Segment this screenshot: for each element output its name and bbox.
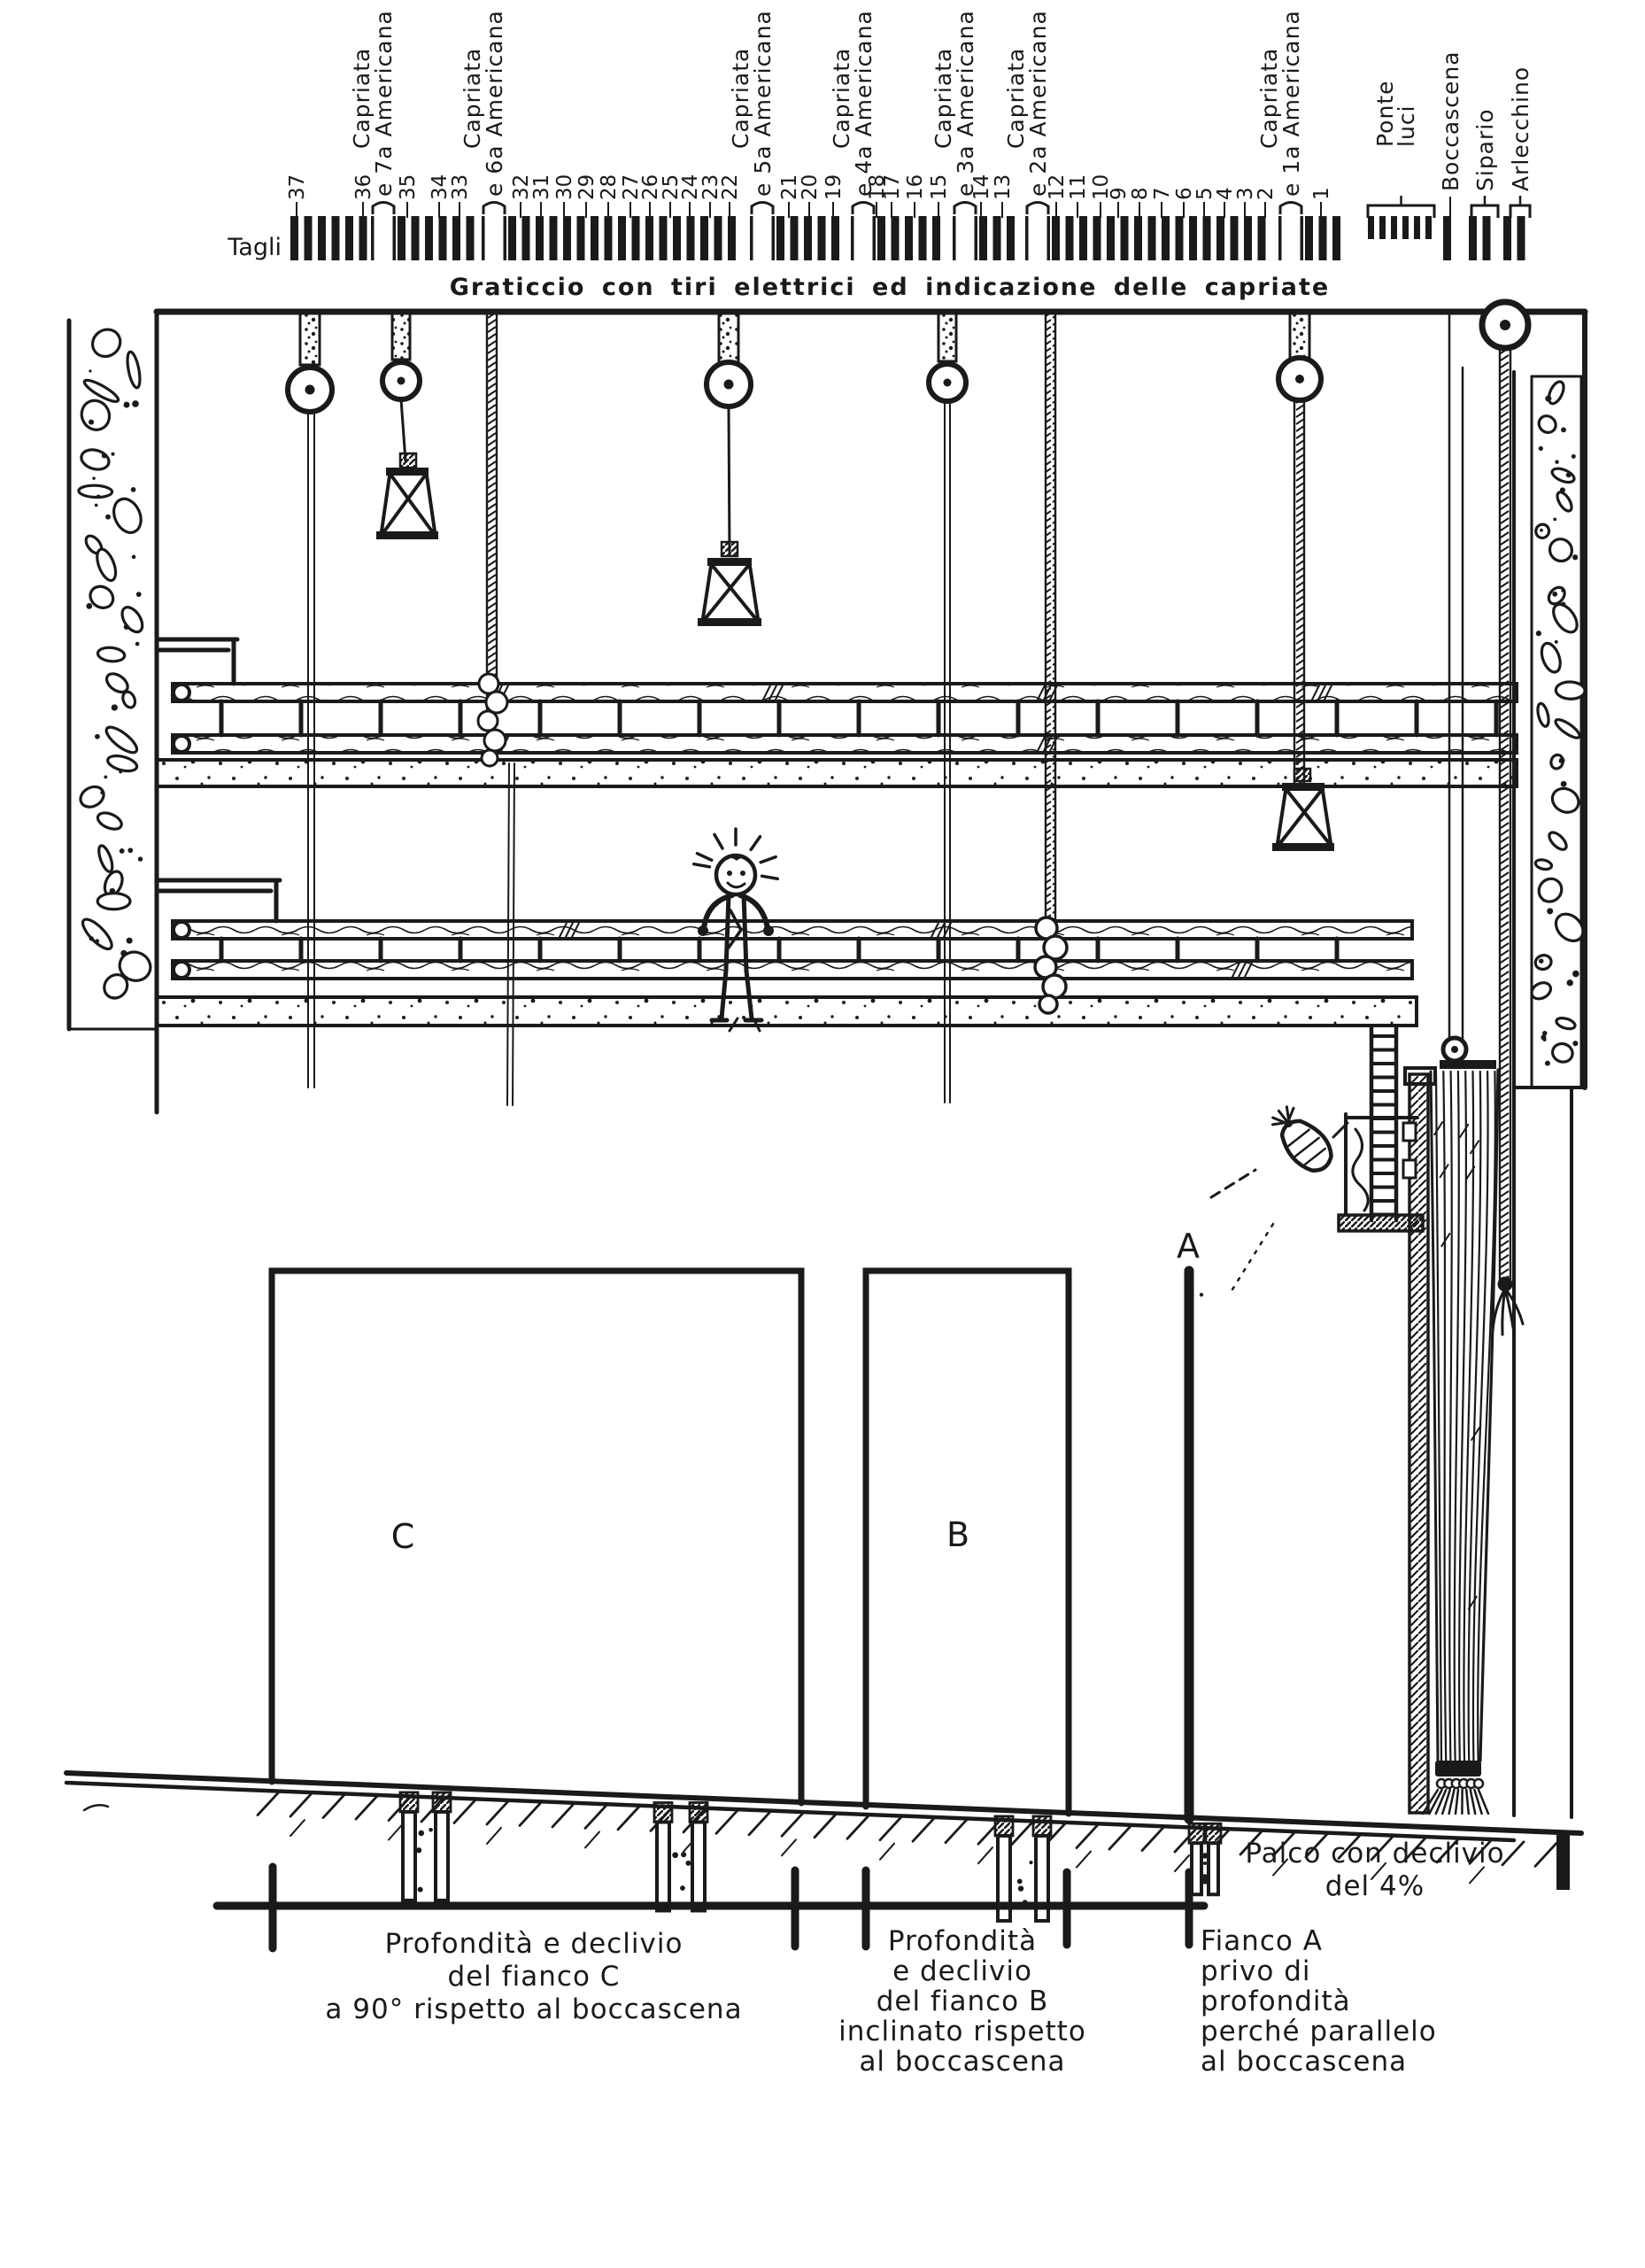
note-palco: Palco con declivio del 4% bbox=[1245, 1838, 1504, 1902]
ruler-bar bbox=[1518, 216, 1525, 260]
ruler-bar bbox=[305, 216, 313, 260]
wall-grit bbox=[1561, 427, 1566, 432]
sleeper-post bbox=[1209, 1843, 1218, 1894]
wall-stone bbox=[1534, 874, 1566, 906]
wall-stone bbox=[1547, 830, 1570, 853]
wall-stone bbox=[97, 844, 115, 873]
wall-grit bbox=[1561, 589, 1564, 592]
capriata-label-line2: e 3a Americana bbox=[953, 10, 978, 197]
ruler-bar bbox=[1443, 216, 1451, 260]
note-b-line4: inclinato rispetto bbox=[838, 2016, 1086, 2047]
tick-number: 15 bbox=[928, 174, 951, 200]
tick-number: 2 bbox=[1255, 187, 1278, 200]
ruler-bar bbox=[892, 216, 900, 260]
gap-bar bbox=[1047, 216, 1051, 260]
tick-number: 8 bbox=[1129, 187, 1152, 200]
tick-number: 11 bbox=[1067, 174, 1090, 200]
counterweight-sack bbox=[1265, 1099, 1348, 1180]
floor-hatch-tick bbox=[389, 1824, 403, 1840]
fabric-fold bbox=[1459, 1072, 1466, 1761]
flat-b-label: B bbox=[946, 1515, 969, 1554]
wall-grit bbox=[104, 775, 107, 778]
wall-grit bbox=[1555, 460, 1558, 463]
tick-number: 9 bbox=[1108, 187, 1131, 200]
ruler-bar bbox=[1121, 216, 1129, 260]
floor-hatch-tick bbox=[290, 1820, 305, 1836]
ruler-bar bbox=[932, 216, 940, 260]
ruler-bar bbox=[398, 216, 405, 260]
gap-bar bbox=[1025, 216, 1029, 260]
halo-ray bbox=[697, 854, 711, 861]
ruler-bar bbox=[318, 216, 326, 260]
floor-hatch-tick bbox=[1470, 1867, 1484, 1883]
wall-grit bbox=[1555, 640, 1558, 644]
note-fianco-a: Fianco A privo di profondità perché para… bbox=[1201, 1925, 1437, 2078]
ruler-bar bbox=[563, 216, 571, 260]
gap-bar bbox=[975, 216, 978, 260]
tick-number: 35 bbox=[397, 174, 420, 200]
sleeper-grit bbox=[419, 1831, 425, 1837]
ruler-bar bbox=[1148, 216, 1156, 260]
rope-7-hemp bbox=[1500, 347, 1510, 1279]
sleeper-cap bbox=[400, 1792, 418, 1812]
wall-stone bbox=[1550, 1041, 1575, 1064]
wall-grit bbox=[1552, 592, 1557, 597]
fabric-fold bbox=[1449, 1072, 1451, 1761]
ruler-bar bbox=[1162, 216, 1170, 260]
wall-grit bbox=[102, 453, 107, 459]
ruler-bar bbox=[687, 216, 695, 260]
ruler-bar bbox=[1066, 216, 1074, 260]
fabric-fold bbox=[1455, 1072, 1459, 1761]
wall-grit bbox=[127, 938, 133, 944]
sleeper-cap bbox=[433, 1792, 451, 1812]
strap-2 bbox=[392, 313, 410, 360]
ruler-bar bbox=[345, 216, 353, 260]
wall-stone bbox=[1538, 641, 1564, 675]
fabric-fold bbox=[1443, 1072, 1446, 1761]
wall-grit bbox=[89, 420, 94, 425]
sleeper-cap bbox=[654, 1802, 672, 1822]
ruler-short-bar bbox=[1402, 216, 1409, 239]
ruler-bar bbox=[979, 216, 987, 260]
wall-grit bbox=[119, 770, 122, 773]
extra-label-line1: Boccascena bbox=[1438, 50, 1464, 191]
sleeper-cap bbox=[1189, 1823, 1204, 1843]
ladder-base bbox=[1339, 1215, 1423, 1231]
gap-bar bbox=[873, 216, 877, 260]
gap-bar bbox=[953, 216, 956, 260]
wall-stone bbox=[1550, 466, 1576, 485]
wall-grit bbox=[105, 515, 111, 520]
sleeper-grit bbox=[1018, 1885, 1023, 1891]
wall-stone bbox=[1555, 490, 1574, 513]
wall-stone bbox=[97, 894, 130, 910]
note-b-line2: e declivio bbox=[892, 1955, 1032, 1987]
gap-bar bbox=[750, 216, 753, 260]
extra-label-line2: luci bbox=[1394, 105, 1419, 147]
ruler-bar bbox=[452, 216, 460, 260]
tick-number: 37 bbox=[286, 174, 309, 200]
flat-c-label: C bbox=[391, 1517, 415, 1556]
wall-grit bbox=[1542, 899, 1545, 902]
curtain-assembly bbox=[1200, 312, 1498, 1814]
note-b-line5: al boccascena bbox=[859, 2046, 1065, 2078]
tick-number: 20 bbox=[799, 174, 822, 200]
note-b-line1: Profondità bbox=[888, 1925, 1037, 1957]
upper-gallery bbox=[157, 639, 1517, 786]
light-batten-2 bbox=[698, 542, 761, 626]
gap-bar bbox=[482, 216, 485, 260]
sleeper-cap bbox=[995, 1816, 1013, 1836]
floor-hatch-tick bbox=[1535, 1843, 1556, 1866]
right-wall-stones bbox=[1529, 379, 1588, 1065]
sleeper-cap bbox=[690, 1802, 707, 1822]
capriata-label-line2: e 7a Americana bbox=[371, 10, 397, 197]
tick-number: 33 bbox=[449, 174, 472, 200]
halo-ray bbox=[694, 864, 710, 867]
fabric-shade-tick bbox=[1471, 1141, 1479, 1153]
wall-stone bbox=[82, 377, 121, 406]
scanned-stage-diagram: Tagli 3736353433323130292827262524232221… bbox=[0, 0, 1645, 2268]
wall-stone bbox=[96, 809, 124, 832]
wall-grit bbox=[1566, 472, 1572, 477]
floor-hatch-tick bbox=[1142, 1828, 1163, 1851]
ruler-title: Tagli bbox=[227, 234, 282, 261]
ruler-short-bar bbox=[1414, 216, 1420, 239]
note-b-line3: del fianco B bbox=[877, 1985, 1049, 2017]
wall-stone bbox=[1555, 1016, 1576, 1031]
note-fianco-b: Profondità e declivio del fianco B incli… bbox=[838, 1925, 1086, 2078]
floor-hatch-tick bbox=[716, 1810, 738, 1833]
ruler-bar bbox=[1176, 216, 1184, 260]
ruler-bar bbox=[905, 216, 913, 260]
sleeper-post bbox=[1192, 1843, 1201, 1894]
wall-grit bbox=[112, 704, 118, 710]
ruler-bar bbox=[877, 216, 885, 260]
ruler-bar bbox=[660, 216, 668, 260]
note-c-line3: a 90° rispetto al boccascena bbox=[325, 1993, 742, 2025]
flat-c-outline bbox=[272, 1271, 801, 1803]
tick-number: 22 bbox=[719, 174, 742, 200]
wall-grit bbox=[1561, 602, 1565, 607]
halo-ray bbox=[714, 834, 722, 848]
gap-bracket bbox=[1027, 203, 1048, 215]
floor-hatch-tick bbox=[749, 1812, 770, 1835]
wall-grit bbox=[1560, 487, 1565, 492]
sleeper-grit bbox=[1203, 1862, 1207, 1865]
gap-bar bbox=[1301, 216, 1304, 260]
note-a-line3: profondità bbox=[1201, 1985, 1351, 2017]
sleeper-grit bbox=[416, 1847, 421, 1853]
wall-grit bbox=[1567, 979, 1573, 986]
halo-ray bbox=[761, 857, 776, 863]
note-fianco-c: Profondità e declivio del fianco C a 90°… bbox=[325, 1928, 742, 2025]
right-wall bbox=[1514, 312, 1588, 1817]
ruler-bar bbox=[618, 216, 626, 260]
floor-hatch-tick bbox=[880, 1817, 901, 1840]
wall-stone bbox=[1548, 784, 1583, 817]
wall-grit bbox=[89, 936, 94, 940]
floor-hatch-tick bbox=[323, 1795, 344, 1818]
gap-bar bbox=[393, 216, 397, 260]
sleeper-grit bbox=[1017, 1878, 1023, 1884]
diagram-canvas: Tagli 3736353433323130292827262524232221… bbox=[0, 0, 1645, 2268]
floor-hatch-tick bbox=[454, 1800, 475, 1823]
capriata-label-line2: e 1a Americana bbox=[1278, 10, 1304, 197]
wall-grit bbox=[92, 476, 95, 479]
fabric-loops bbox=[1437, 1779, 1483, 1788]
note-c-line1: Profondità e declivio bbox=[385, 1928, 683, 1960]
upper-gallery-bracket bbox=[157, 639, 237, 684]
ruler-bar bbox=[1189, 216, 1197, 260]
wall-grit bbox=[86, 603, 92, 609]
graticcio-scale: Tagli 3736353433323130292827262524232221… bbox=[227, 10, 1533, 301]
wall-stone bbox=[125, 351, 142, 389]
rope-6-hemp bbox=[1294, 400, 1304, 785]
floor-hatch-tick bbox=[356, 1796, 377, 1819]
ruler-bar bbox=[412, 216, 420, 260]
wall-grit bbox=[1572, 1041, 1578, 1046]
sleeper-post bbox=[692, 1822, 705, 1910]
dimension-line bbox=[217, 1867, 1204, 1948]
flat-a-label: A bbox=[1177, 1227, 1200, 1266]
ruler-short-bar bbox=[1391, 216, 1397, 239]
ruler-bar bbox=[550, 216, 558, 260]
wall-grit bbox=[1545, 396, 1551, 402]
gap-bar bbox=[851, 216, 854, 260]
ruler-bar bbox=[831, 216, 839, 260]
fabric-edge bbox=[1480, 1070, 1498, 1761]
sleeper-grit bbox=[680, 1885, 685, 1891]
floor-hatch-tick bbox=[520, 1802, 541, 1825]
sleeper-cap bbox=[1206, 1823, 1221, 1843]
extra-label-line1: Sipario bbox=[1472, 108, 1498, 191]
note-c-line2: del fianco C bbox=[448, 1961, 621, 1993]
wall-stone bbox=[118, 604, 146, 636]
ruler-bar bbox=[1483, 216, 1491, 260]
ruler-bar bbox=[804, 216, 812, 260]
note-palco-line1: Palco con declivio bbox=[1245, 1838, 1504, 1869]
fly-lines bbox=[288, 302, 1528, 1335]
wall-stone bbox=[106, 753, 139, 773]
lower-gallery bbox=[157, 880, 1417, 1026]
gap-bracket bbox=[853, 203, 874, 215]
ruler-bar bbox=[577, 216, 585, 260]
ruler-bar bbox=[1107, 216, 1115, 260]
ruler-bar bbox=[1052, 216, 1060, 260]
ruler-bar bbox=[919, 216, 927, 260]
ruler-bar bbox=[714, 216, 722, 260]
ruler-bar bbox=[1079, 216, 1087, 260]
stage-section-drawing: C B A Profondità e declivio del fianco C bbox=[66, 302, 1588, 2078]
gap-bar bbox=[772, 216, 776, 260]
wall-stone bbox=[1556, 681, 1585, 699]
ruler-bar bbox=[332, 216, 340, 260]
wall-grit bbox=[1553, 517, 1556, 521]
wall-grit bbox=[1572, 554, 1578, 560]
wall-stone bbox=[1535, 413, 1559, 436]
wall-grit bbox=[120, 848, 125, 854]
wall-grit bbox=[132, 400, 139, 407]
ruler-marks: 3736353433323130292827262524232221201918… bbox=[286, 174, 1333, 218]
left-wall bbox=[69, 312, 157, 1112]
fabric-fan-strand bbox=[1466, 1790, 1469, 1814]
wall-grit bbox=[1572, 971, 1579, 978]
wall-grit bbox=[1559, 760, 1563, 763]
gap-bracket bbox=[1280, 203, 1301, 215]
note-a-line1: Fianco A bbox=[1201, 1925, 1323, 1957]
wall-stone bbox=[1546, 379, 1566, 406]
wall-grit bbox=[1545, 1061, 1550, 1066]
tick-number: 13 bbox=[992, 174, 1015, 200]
wall-stone bbox=[77, 783, 107, 811]
strap-1 bbox=[300, 313, 320, 365]
ruler-bar bbox=[993, 216, 1001, 260]
halo-ray bbox=[762, 876, 778, 879]
ruler-bar bbox=[728, 216, 736, 260]
light-batten-1 bbox=[376, 453, 438, 539]
floor-hatch-tick bbox=[487, 1828, 501, 1844]
sleeper-grit bbox=[1202, 1874, 1208, 1879]
capriata-label-line2: e 6a Americana bbox=[482, 10, 507, 197]
curtain-crossbar bbox=[1440, 1060, 1496, 1069]
floor-hatch-tick bbox=[978, 1847, 992, 1863]
rope-2 bbox=[401, 399, 405, 461]
extra-bracket bbox=[1510, 205, 1530, 218]
gap-bracket bbox=[483, 203, 505, 215]
sleeper-grit bbox=[685, 1861, 691, 1866]
wall-stone bbox=[1536, 702, 1551, 727]
ruler-bar bbox=[425, 216, 433, 260]
floor-hatch-tick bbox=[585, 1831, 599, 1847]
note-a-line4: perché parallelo bbox=[1201, 2016, 1437, 2047]
wall-grit bbox=[1539, 958, 1543, 963]
wall-grit bbox=[131, 487, 136, 492]
ruler-bar bbox=[1216, 216, 1224, 260]
floor-hatch-tick bbox=[782, 1839, 796, 1855]
sleeper-grit bbox=[672, 1852, 678, 1858]
floor-hatch-tick bbox=[258, 1792, 279, 1815]
gap-bar bbox=[1278, 216, 1282, 260]
note-palco-line2: del 4% bbox=[1325, 1870, 1425, 1902]
wall-grit bbox=[120, 950, 127, 956]
wall-grit bbox=[110, 888, 116, 894]
wall-grit bbox=[1572, 454, 1576, 459]
ruler-bar bbox=[1007, 216, 1015, 260]
wall-stone bbox=[103, 723, 141, 756]
ruler-bar bbox=[1093, 216, 1101, 260]
lower-gallery-deck bbox=[157, 997, 1417, 1026]
sleeper-grit bbox=[418, 1887, 423, 1893]
wall-stone bbox=[1534, 858, 1552, 871]
ruler-bar bbox=[1305, 216, 1313, 260]
ruler-bar bbox=[290, 216, 298, 260]
rope-5-hemp bbox=[1046, 312, 1055, 932]
fabric-shade-tick bbox=[1471, 1428, 1479, 1440]
floor-hatch-tick bbox=[487, 1801, 508, 1824]
ruler-bar bbox=[1203, 216, 1211, 260]
ruler-bar bbox=[645, 216, 653, 260]
wall-grit bbox=[124, 624, 129, 630]
ruler-bar bbox=[439, 216, 447, 260]
floor-hatch-tick bbox=[782, 1813, 803, 1836]
lower-gallery-bracket bbox=[157, 880, 280, 921]
capriata-label-line2: e 4a Americana bbox=[851, 10, 877, 197]
tick-number: 31 bbox=[530, 174, 553, 200]
left-wall-stones bbox=[77, 324, 155, 1002]
sleeper-post bbox=[403, 1812, 415, 1900]
extra-bracket bbox=[1471, 205, 1498, 218]
ruler-short-bar bbox=[1368, 216, 1374, 239]
tick-number: 16 bbox=[904, 174, 927, 200]
wall-stone bbox=[79, 915, 116, 953]
ruler-bar bbox=[1231, 216, 1239, 260]
fabric-fan bbox=[1423, 1790, 1488, 1814]
fabric-fan-strand bbox=[1456, 1790, 1458, 1814]
gap-bracket bbox=[954, 203, 976, 215]
tick-number: 29 bbox=[575, 174, 599, 200]
floor-hatch-tick bbox=[847, 1815, 869, 1838]
wall-grit bbox=[1561, 781, 1567, 787]
wall-grit bbox=[132, 555, 136, 560]
ruler-bar bbox=[1332, 216, 1340, 260]
ruler-bar bbox=[536, 216, 544, 260]
wall-grit bbox=[1541, 1034, 1546, 1040]
wall-stone bbox=[1553, 716, 1582, 740]
floor-right-post bbox=[1556, 1835, 1570, 1890]
wall-grit bbox=[95, 504, 98, 507]
wall-grit bbox=[135, 642, 140, 646]
note-a-line2: privo di bbox=[1201, 1955, 1311, 1987]
ruler-bar bbox=[359, 216, 367, 260]
sipario-batten bbox=[1409, 1074, 1428, 1813]
wall-grit bbox=[1540, 529, 1543, 532]
capriata-label-line2: e 2a Americana bbox=[1025, 10, 1051, 197]
ruler-bar bbox=[791, 216, 799, 260]
gap-bracket bbox=[752, 203, 773, 215]
floor-hatch-tick bbox=[1011, 1823, 1032, 1846]
wall-grit bbox=[95, 939, 99, 943]
tick-number: 19 bbox=[822, 174, 846, 200]
ruler-bar bbox=[591, 216, 599, 260]
floor-hatch-tick bbox=[946, 1820, 967, 1843]
ruler-bar bbox=[522, 216, 530, 260]
rope-3-hemp bbox=[487, 312, 497, 710]
gap-bracket bbox=[373, 203, 394, 215]
sleeper-post bbox=[436, 1812, 448, 1900]
capriata-label-line2: e 5a Americana bbox=[750, 10, 776, 197]
fabric-loop bbox=[1474, 1779, 1483, 1788]
sleeper-post bbox=[657, 1822, 669, 1910]
tick-number: 28 bbox=[598, 174, 621, 200]
floor-hatch-tick bbox=[618, 1807, 639, 1830]
ladder-rungs bbox=[1371, 1036, 1396, 1215]
wall-grit bbox=[100, 791, 104, 794]
floor-hatch-tick bbox=[1502, 1842, 1524, 1865]
ruler-short-bar bbox=[1379, 216, 1386, 239]
sleeper-grit bbox=[429, 1828, 433, 1832]
wall-stone bbox=[79, 485, 112, 499]
strap-3 bbox=[719, 313, 738, 363]
sleeper-grit bbox=[1029, 1861, 1032, 1864]
wall-stone bbox=[1533, 954, 1553, 971]
wall-grit bbox=[1536, 631, 1541, 636]
gap-bar bbox=[504, 216, 507, 260]
wall-stone bbox=[109, 494, 146, 537]
wall-stone bbox=[88, 324, 126, 362]
floor-hatch-tick bbox=[1109, 1826, 1131, 1849]
